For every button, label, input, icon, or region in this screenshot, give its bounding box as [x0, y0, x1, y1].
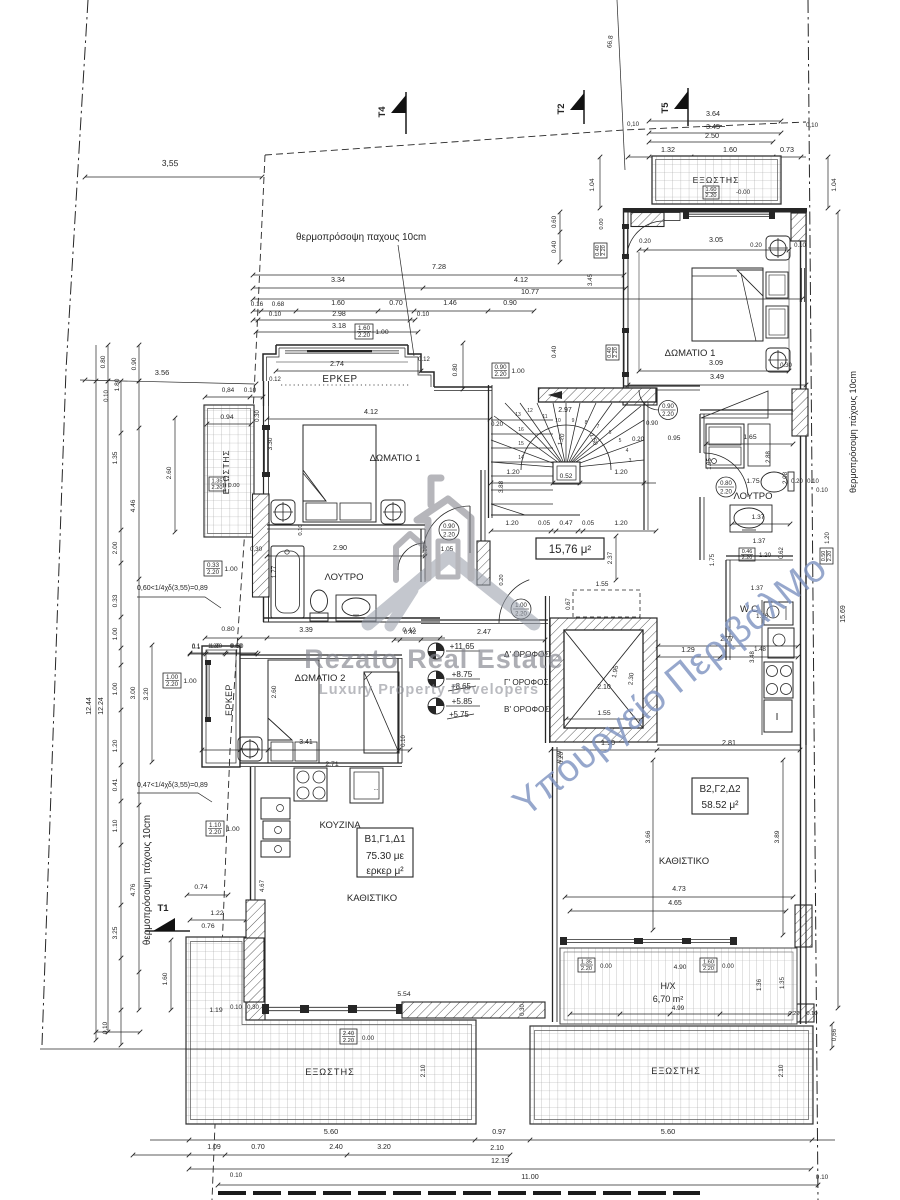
svg-text:0.30: 0.30 [780, 363, 792, 369]
svg-text:H/X: H/X [660, 981, 675, 991]
svg-text:2.20: 2.20 [494, 371, 507, 378]
svg-text:2.40: 2.40 [343, 1031, 354, 1037]
svg-text:ΕΡΚΕΡ: ΕΡΚΕΡ [224, 684, 234, 716]
svg-text:0.00: 0.00 [600, 964, 612, 970]
svg-text:2.20: 2.20 [209, 829, 222, 836]
svg-text:16: 16 [518, 427, 524, 433]
svg-text:11: 11 [542, 414, 547, 420]
svg-text:ερκερ μ²: ερκερ μ² [366, 866, 404, 877]
svg-text:2.97: 2.97 [558, 407, 572, 414]
svg-text:2.50: 2.50 [705, 131, 719, 140]
svg-text:...: ... [373, 786, 378, 792]
svg-text:0.05: 0.05 [582, 520, 595, 527]
svg-text:4.73: 4.73 [672, 886, 686, 893]
svg-text:0.90: 0.90 [131, 357, 138, 370]
svg-text:6: 6 [609, 430, 612, 436]
svg-text:7: 7 [597, 424, 600, 430]
svg-text:0.95: 0.95 [668, 435, 681, 442]
svg-text:T5: T5 [660, 102, 671, 114]
svg-text:4.46: 4.46 [130, 499, 137, 512]
svg-text:0,84: 0,84 [222, 387, 235, 394]
svg-text:3.18: 3.18 [332, 321, 346, 330]
svg-text:0.68: 0.68 [272, 301, 285, 308]
svg-text:3.88: 3.88 [498, 480, 505, 493]
svg-text:0.90: 0.90 [503, 300, 517, 307]
svg-text:0.33: 0.33 [112, 594, 119, 607]
svg-text:1.20: 1.20 [506, 469, 519, 476]
svg-text:4.76: 4.76 [130, 883, 137, 896]
svg-text:0.20: 0.20 [632, 436, 645, 443]
svg-text:0.00: 0.00 [362, 1035, 375, 1042]
svg-text:0.40: 0.40 [551, 345, 558, 358]
svg-text:3.41: 3.41 [299, 739, 313, 746]
svg-text:0.05: 0.05 [538, 520, 551, 527]
svg-text:3.05: 3.05 [709, 235, 723, 244]
svg-text:0.10: 0.10 [807, 479, 819, 485]
svg-text:1.75: 1.75 [746, 478, 759, 485]
svg-text:1.20: 1.20 [112, 739, 119, 752]
svg-text:Luxury Property Developers: Luxury Property Developers [319, 682, 539, 698]
svg-text:3.64: 3.64 [706, 109, 720, 118]
svg-text:2.10: 2.10 [420, 1064, 427, 1077]
svg-text:75.30 με: 75.30 με [366, 851, 405, 862]
svg-text:3: 3 [629, 458, 632, 464]
svg-text:ΚΑΘΙΣΤΙΚΟ: ΚΑΘΙΣΤΙΚΟ [659, 856, 709, 867]
svg-text:0.10: 0.10 [401, 735, 407, 747]
svg-text:0.73: 0.73 [780, 145, 794, 154]
svg-text:10: 10 [555, 418, 561, 424]
svg-text:1.60: 1.60 [331, 300, 345, 307]
svg-text:2.37: 2.37 [607, 551, 614, 564]
svg-text:0.12: 0.12 [418, 357, 430, 363]
svg-text:1.00: 1.00 [375, 329, 388, 336]
svg-text:1.00: 1.00 [511, 368, 524, 375]
svg-text:0.76: 0.76 [201, 923, 214, 930]
svg-text:2.20: 2.20 [581, 966, 592, 972]
svg-text:0.1: 0.1 [192, 645, 201, 651]
svg-text:3.89: 3.89 [774, 830, 781, 843]
svg-text:15: 15 [518, 441, 524, 447]
svg-text:6,70 m²: 6,70 m² [653, 994, 684, 1004]
svg-text:2.71: 2.71 [325, 761, 338, 768]
svg-text:1.20: 1.20 [759, 552, 772, 559]
svg-text:0.10: 0.10 [104, 390, 110, 402]
svg-text:B1,Γ1,Δ1: B1,Γ1,Δ1 [364, 834, 406, 845]
svg-text:T2: T2 [556, 103, 567, 114]
svg-text:1.46: 1.46 [443, 300, 457, 307]
svg-text:1.37: 1.37 [752, 514, 765, 521]
svg-text:3.30: 3.30 [267, 437, 274, 450]
svg-text:1.77: 1.77 [271, 565, 278, 578]
svg-text:15.69: 15.69 [840, 605, 847, 623]
svg-text:ΚΟΥΖΙΝΑ: ΚΟΥΖΙΝΑ [319, 820, 361, 831]
svg-text:0.10: 0.10 [794, 243, 806, 249]
svg-text:I: I [776, 712, 779, 723]
svg-text:0.00: 0.00 [228, 483, 239, 489]
svg-text:0.80: 0.80 [221, 626, 234, 633]
svg-text:B2,Γ2,Δ2: B2,Γ2,Δ2 [699, 784, 741, 795]
svg-text:12.19: 12.19 [491, 1156, 509, 1165]
svg-text:1.20: 1.20 [505, 520, 518, 527]
svg-text:ΛΟΥΤΡΟ: ΛΟΥΤΡΟ [733, 491, 772, 502]
svg-text:12: 12 [527, 408, 533, 414]
svg-text:2.10: 2.10 [597, 684, 611, 691]
svg-text:ΕΞΩΣΤΗΣ: ΕΞΩΣΤΗΣ [693, 175, 740, 185]
svg-text:0.67: 0.67 [566, 598, 572, 610]
svg-text:8: 8 [585, 420, 588, 426]
svg-text:1.55: 1.55 [596, 581, 609, 588]
svg-text:θερμοπρόσοψη πάχους 10cm: θερμοπρόσοψη πάχους 10cm [142, 815, 153, 945]
svg-text:2.60: 2.60 [271, 685, 278, 698]
svg-text:3.34: 3.34 [331, 275, 345, 284]
svg-text:1.00: 1.00 [224, 566, 237, 573]
svg-text:2.90: 2.90 [333, 543, 347, 552]
svg-text:1.04: 1.04 [589, 178, 596, 191]
svg-text:1.00: 1.00 [112, 627, 119, 640]
svg-text:1.32: 1.32 [661, 145, 675, 154]
svg-text:0.90: 0.90 [662, 404, 674, 410]
svg-text:2.20: 2.20 [706, 193, 717, 199]
svg-text:2.20: 2.20 [601, 245, 607, 256]
svg-text:5: 5 [619, 438, 622, 444]
svg-text:0.12: 0.12 [269, 377, 281, 383]
svg-text:0.10: 0.10 [806, 1011, 817, 1017]
svg-text:0,30: 0,30 [250, 546, 263, 553]
svg-text:1.48: 1.48 [754, 647, 766, 653]
svg-text:0.00: 0.00 [722, 964, 734, 970]
svg-text:0.52: 0.52 [560, 473, 573, 480]
svg-text:0.10: 0.10 [417, 311, 430, 318]
svg-text:9: 9 [572, 418, 575, 424]
svg-text:4.99: 4.99 [672, 1005, 685, 1012]
svg-text:0.20: 0.20 [491, 421, 504, 428]
svg-text:1.00: 1.00 [183, 678, 196, 685]
svg-text:11.00: 11.00 [521, 1172, 538, 1181]
svg-text:3.20: 3.20 [377, 1144, 391, 1151]
svg-text:0.10: 0.10 [816, 488, 828, 494]
svg-text:ΔΩΜΑΤΙΟ 1: ΔΩΜΑΤΙΟ 1 [665, 348, 716, 359]
svg-text:1.35: 1.35 [581, 959, 592, 965]
svg-text:2.88: 2.88 [766, 451, 772, 463]
svg-text:ΕΞΩΣΤΗΣ: ΕΞΩΣΤΗΣ [651, 1066, 701, 1076]
svg-text:4.12: 4.12 [514, 275, 528, 284]
svg-text:2.08: 2.08 [782, 471, 789, 484]
svg-text:T1: T1 [157, 903, 169, 914]
svg-text:2.00: 2.00 [112, 541, 119, 554]
svg-text:5.60: 5.60 [661, 1127, 675, 1136]
svg-text:ΛΟΥΤΡΟ: ΛΟΥΤΡΟ [324, 572, 363, 583]
svg-text:3.39: 3.39 [299, 627, 313, 634]
svg-text:0.80: 0.80 [452, 363, 459, 376]
svg-text:3.00: 3.00 [130, 686, 137, 699]
svg-text:0.80: 0.80 [100, 355, 107, 368]
svg-text:0.10: 0.10 [269, 311, 282, 318]
svg-text:Rezato Real Estate: Rezato Real Estate [304, 644, 564, 674]
svg-text:0.70: 0.70 [251, 1144, 265, 1151]
svg-text:0.94: 0.94 [220, 414, 233, 421]
svg-text:0,10: 0,10 [627, 121, 640, 128]
svg-text:1.60: 1.60 [162, 972, 169, 985]
svg-text:0.80: 0.80 [720, 481, 732, 487]
svg-text:1.65: 1.65 [743, 434, 756, 441]
svg-text:0.41: 0.41 [112, 778, 119, 791]
svg-text:-0.00: -0.00 [736, 189, 751, 196]
svg-text:2.47: 2.47 [477, 627, 491, 636]
svg-text:ΔΩΜΑΤΙΟ 1: ΔΩΜΑΤΙΟ 1 [370, 453, 421, 464]
svg-text:4.67: 4.67 [259, 879, 266, 892]
svg-text:0.40: 0.40 [551, 240, 558, 253]
svg-text:ΕΞΩΣΤΗΣ: ΕΞΩΣΤΗΣ [305, 1067, 355, 1077]
svg-text:1.35: 1.35 [779, 976, 786, 989]
svg-text:2.30: 2.30 [627, 672, 635, 685]
svg-text:1.22: 1.22 [210, 910, 223, 917]
svg-text:0.60: 0.60 [551, 215, 558, 228]
svg-text:4.90: 4.90 [674, 964, 687, 971]
svg-text:58.52 μ²: 58.52 μ² [702, 800, 740, 811]
svg-text:0,60<1/4χδ(3,55)=0,89: 0,60<1/4χδ(3,55)=0,89 [137, 585, 208, 592]
svg-text:3.66: 3.66 [645, 830, 652, 843]
svg-text:15,76 μ²: 15,76 μ² [549, 544, 592, 556]
svg-text:3.20: 3.20 [143, 687, 150, 700]
svg-text:12.44: 12.44 [86, 697, 93, 715]
svg-text:2.20: 2.20 [742, 555, 753, 561]
svg-text:ΕΡΚΕΡ: ΕΡΚΕΡ [322, 374, 357, 385]
svg-text:1.80: 1.80 [114, 378, 121, 391]
svg-text:10.77: 10.77 [521, 287, 539, 296]
svg-text:7.28: 7.28 [432, 262, 446, 271]
svg-text:3.56: 3.56 [155, 368, 170, 377]
svg-text:1.09: 1.09 [207, 1144, 221, 1151]
svg-text:14: 14 [518, 455, 524, 461]
svg-text:1.75: 1.75 [709, 553, 716, 566]
svg-text:θερμοπρόσοψη πάχους 10cm: θερμοπρόσοψη πάχους 10cm [848, 371, 858, 493]
svg-text:2.20: 2.20 [358, 332, 371, 339]
svg-text:0.20: 0.20 [639, 239, 651, 245]
svg-text:0.20: 0.20 [750, 243, 762, 249]
svg-text:0.20: 0.20 [791, 479, 803, 485]
svg-text:2.20: 2.20 [207, 569, 220, 576]
svg-text:0.90: 0.90 [443, 524, 455, 530]
svg-text:1.20: 1.20 [825, 532, 831, 544]
svg-text:1.20: 1.20 [210, 643, 223, 650]
svg-text:1.19: 1.19 [209, 1007, 222, 1014]
svg-text:T4: T4 [377, 106, 388, 118]
svg-text:0.42: 0.42 [404, 629, 417, 636]
svg-text:1.20: 1.20 [614, 520, 627, 527]
svg-text:1.37: 1.37 [753, 538, 766, 545]
svg-text:1.00: 1.00 [226, 826, 239, 833]
svg-text:0.16: 0.16 [251, 301, 264, 308]
svg-text:Β' ΟΡΟΦΟΣ: Β' ΟΡΟΦΟΣ [504, 705, 549, 714]
svg-text:2.10: 2.10 [490, 1145, 504, 1152]
svg-text:0.20: 0.20 [788, 1011, 799, 1017]
svg-text:2.81: 2.81 [722, 738, 736, 747]
svg-text:+5.85: +5.85 [452, 697, 473, 706]
svg-text:1.04: 1.04 [831, 178, 838, 191]
svg-text:1.36: 1.36 [756, 978, 763, 991]
svg-text:3.49: 3.49 [710, 372, 724, 381]
svg-text:0.60: 0.60 [231, 643, 244, 650]
svg-text:13: 13 [515, 412, 521, 418]
svg-text:4.65: 4.65 [668, 900, 682, 907]
svg-text:2.20: 2.20 [827, 551, 833, 562]
svg-text:ΚΑΘΙΣΤΙΚΟ: ΚΑΘΙΣΤΙΚΟ [347, 893, 397, 904]
svg-text:2.20: 2.20 [703, 966, 714, 972]
svg-text:2.20: 2.20 [343, 1038, 354, 1044]
svg-text:0.10: 0.10 [816, 1174, 829, 1181]
svg-text:1.10: 1.10 [112, 819, 119, 832]
svg-text:4: 4 [626, 448, 629, 454]
svg-text:0,10: 0,10 [806, 122, 819, 129]
svg-text:2.10: 2.10 [778, 1064, 785, 1077]
svg-text:3,55: 3,55 [162, 158, 179, 169]
svg-text:5.54: 5.54 [397, 991, 410, 998]
svg-text:5.60: 5.60 [324, 1127, 338, 1136]
svg-text:0.97: 0.97 [492, 1129, 506, 1136]
svg-text:2.20: 2.20 [212, 485, 223, 491]
svg-text:3.09: 3.09 [709, 358, 723, 367]
svg-text:1.35: 1.35 [212, 478, 223, 484]
svg-text:2.20: 2.20 [662, 412, 674, 418]
svg-text:2.74: 2.74 [330, 359, 344, 368]
svg-text:0.90: 0.90 [646, 420, 659, 427]
svg-text:0.30: 0.30 [255, 410, 261, 422]
svg-text:1.35: 1.35 [112, 451, 119, 464]
svg-text:1.60: 1.60 [723, 145, 737, 154]
svg-text:0.10: 0.10 [298, 524, 304, 535]
svg-text:0.10: 0.10 [230, 1005, 242, 1011]
svg-text:2.60: 2.60 [166, 466, 173, 479]
svg-text:0.74: 0.74 [194, 884, 207, 891]
svg-text:3.25: 3.25 [112, 926, 119, 939]
svg-text:2.98: 2.98 [332, 311, 346, 318]
svg-text:θερμοπρόσοψη παχους 10cm: θερμοπρόσοψη παχους 10cm [296, 232, 426, 243]
svg-text:1.95: 1.95 [707, 458, 713, 470]
svg-text:0.20: 0.20 [499, 574, 505, 585]
svg-text:0,47<1/4χδ(3,55)=0,89: 0,47<1/4χδ(3,55)=0,89 [137, 782, 208, 789]
svg-text:0.47: 0.47 [559, 520, 572, 527]
svg-text:0,30: 0,30 [247, 1005, 259, 1011]
svg-text:0.70: 0.70 [389, 300, 403, 307]
svg-text:0.10: 0.10 [230, 1172, 243, 1179]
svg-text:2.40: 2.40 [329, 1144, 343, 1151]
svg-text:2.20: 2.20 [443, 532, 455, 538]
svg-text:1.60: 1.60 [703, 959, 714, 965]
svg-text:1.00: 1.00 [112, 682, 119, 695]
svg-text:12.24: 12.24 [98, 697, 105, 715]
svg-text:4.12: 4.12 [364, 407, 378, 416]
svg-text:2.20: 2.20 [166, 681, 179, 688]
svg-text:0.62: 0.62 [779, 547, 785, 559]
svg-text:2.20: 2.20 [720, 489, 732, 495]
svg-text:2.20: 2.20 [613, 347, 619, 358]
svg-text:1.20: 1.20 [614, 469, 627, 476]
svg-text:0.10: 0.10 [244, 387, 257, 394]
svg-text:0.00: 0.00 [599, 218, 605, 229]
svg-text:0.30: 0.30 [520, 1004, 526, 1016]
